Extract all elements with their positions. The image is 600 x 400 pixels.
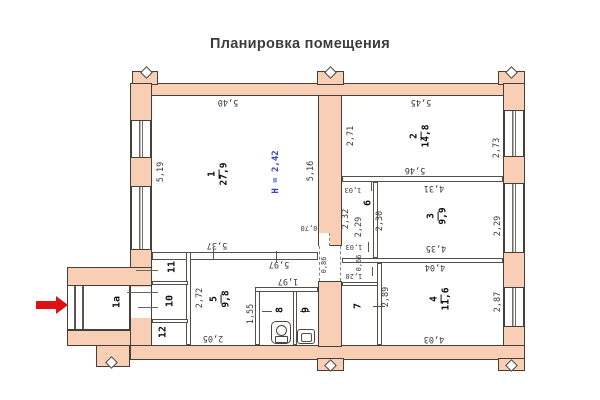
entrance-arrow-icon [36,301,57,309]
dim-tick [372,267,373,276]
partition-room3-bottom [342,258,503,263]
room-label-8: 8 [274,307,286,313]
dim-room1-left: 5,19 [156,162,166,182]
dim-room3-top: 4,31 [424,183,444,193]
room-label-1a: 1а [111,296,123,308]
room-number: 8 [274,307,286,313]
floor-plan: Планировка помещения [0,0,600,400]
dim-room5-left: 2,72 [195,288,205,308]
room-number: 9 [300,307,312,313]
dim-room2-bottom: 5,46 [405,165,425,175]
dim-corridor-left: 2,32 [341,209,351,229]
toilet-bowl [271,321,291,344]
room-label-10: 10 [164,295,176,307]
dim-tick [368,242,369,252]
dim-corridor-right: 2,29 [354,217,364,237]
room-number: 12 [157,326,169,338]
window [504,287,524,327]
room-area: 9,8 [222,290,233,307]
dim-hall-top: 5,37 [207,240,227,250]
dim-room5-bottom: 2,05 [203,333,223,343]
window [504,110,524,157]
dim-room3-right: 2,29 [493,216,503,236]
room-number: 7 [352,303,364,309]
leader-line [136,270,158,271]
partition-bath-top [255,287,318,292]
room-area: 11,6 [442,288,453,311]
dim-room3-left: 2,30 [375,211,385,231]
room-label-2: 2 14,8 [410,125,433,148]
toilet-base [275,336,288,343]
leader-line [138,307,158,308]
toilet-icon [271,321,291,344]
room-label-3: 3 9,9 [427,207,450,224]
partition-10-12 [152,319,188,323]
dim-passage: 0,86 [320,257,328,274]
room-area: 14,8 [422,125,433,148]
room-label-12: 12 [157,326,169,338]
window [131,186,151,250]
dim-room2-top: 5,45 [411,97,431,107]
porch-door-line [82,286,84,329]
leader-line [127,292,158,293]
room-label-4: 4 11,6 [430,288,453,311]
room-label-7: 7 [352,303,364,309]
dim-tick [262,311,272,312]
porch-wall-bottom [67,330,131,346]
dim-room4-bottom: 4,03 [424,334,444,344]
room-area: 27,9 [220,163,231,186]
entrance-arrow-head-icon [56,296,68,314]
partition-11-10 [152,281,188,285]
dim-room4-left: 2,89 [381,287,391,307]
window [504,183,524,253]
dim-ceiling-height: Н = 2,42 [271,150,281,193]
partition-hall-top [152,252,318,260]
wall-center-lower [318,281,342,347]
partition-room7-top [342,282,378,286]
dim-room2-right: 2,73 [492,138,502,158]
dim-room4-right: 2,87 [493,292,503,312]
toilet-circle [276,325,287,336]
partition-room2-bottom [342,176,503,182]
sink-icon [297,329,315,344]
dim-vest-len: 1,28 [346,272,363,280]
dim-vest-door: 0,66 [355,255,363,272]
room-label-11: 11 [166,261,178,273]
room-number: 1а [111,296,123,308]
dim-hall-bottom: 5,97 [269,259,289,269]
dim-room4-top: 4,04 [425,262,445,272]
dim-room1-right: 5,16 [306,161,316,181]
room-number: 6 [362,200,374,206]
porch-door-line [74,286,76,329]
dim-bath-top: 1,97 [278,276,298,286]
partition-closet-column [186,252,191,345]
door-opening-room1 [319,233,330,246]
sink-basin [301,333,312,342]
room-area: 9,9 [439,207,450,224]
dim-tick [213,249,214,260]
room-label-6: 6 [362,200,374,206]
dim-bath-left: 1,55 [246,304,256,324]
room-label-1: 1 27,9 [208,163,231,186]
page-title: Планировка помещения [0,36,600,52]
wall-center-upper [318,95,342,246]
window [131,120,151,158]
dim-tick [371,182,372,191]
room-number: 11 [166,261,178,273]
dim-corridor-bottom: 1,03 [346,243,363,251]
dim-room3-bottom: 4,35 [426,243,446,253]
dim-door-room1: 0,70 [301,224,318,232]
dim-room2-left: 2,71 [346,126,356,146]
dim-room1-top: 5,40 [218,97,238,107]
room-label-5: 5 9,8 [210,290,233,307]
sink-outer [297,329,315,344]
room-number: 10 [164,295,176,307]
room-label-9: 9 [300,307,312,313]
dim-corridor-top: 1,03 [345,186,362,194]
